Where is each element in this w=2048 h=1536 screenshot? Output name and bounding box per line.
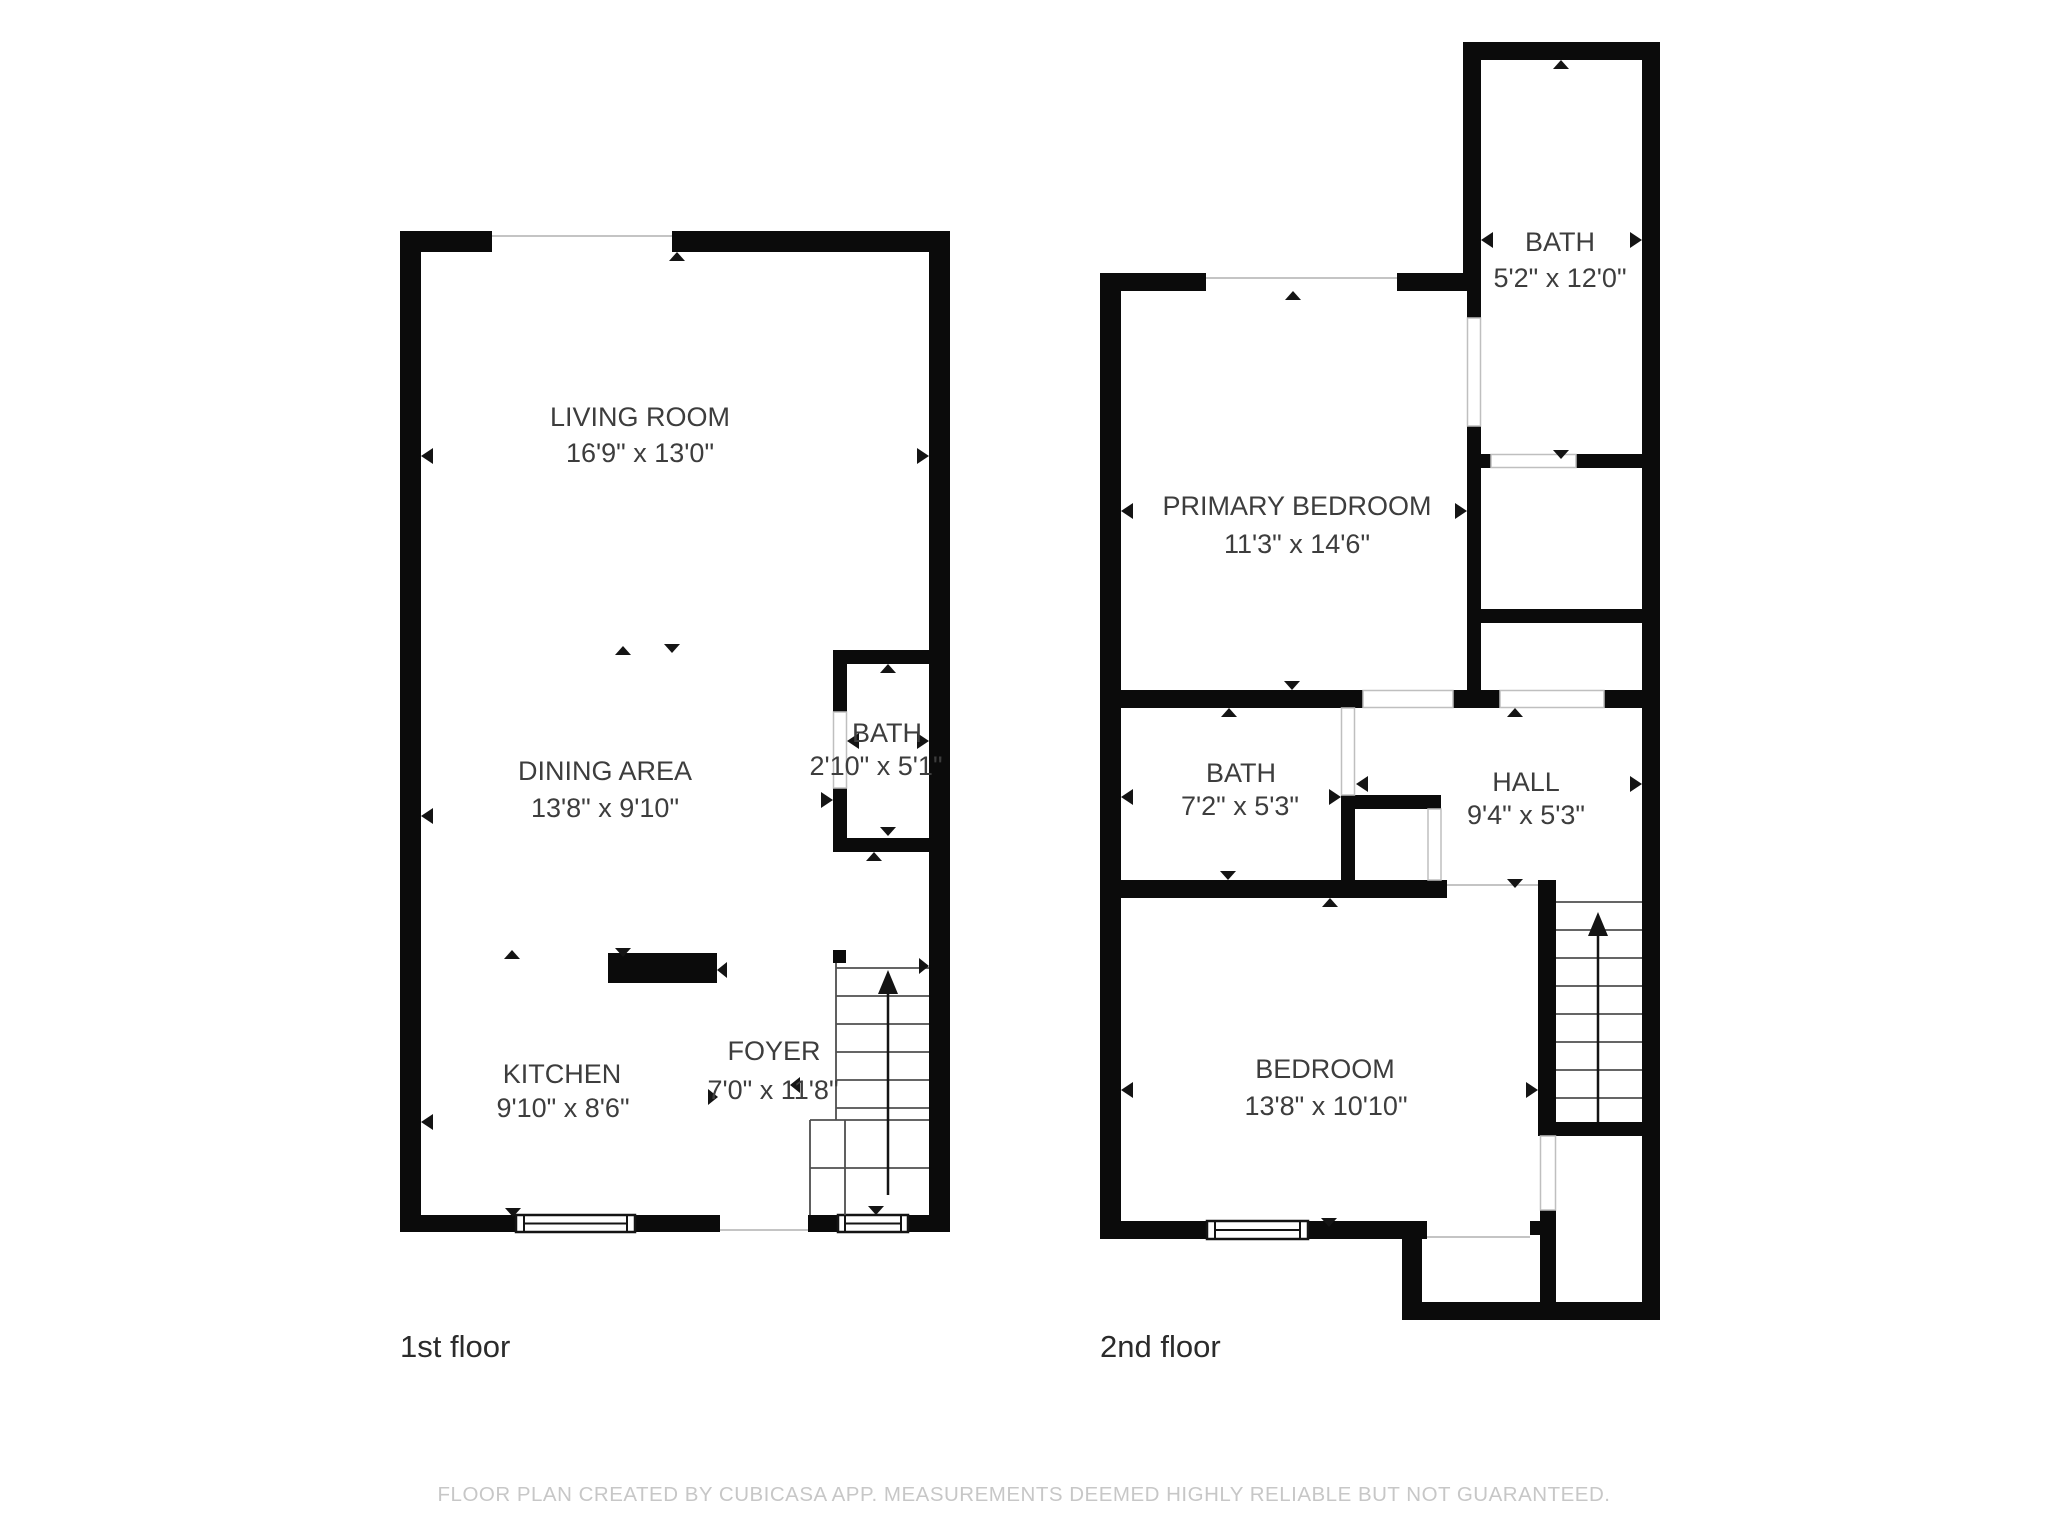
measure-arrow-down-icon bbox=[880, 827, 896, 836]
room-label-living-room: LIVING ROOM bbox=[550, 402, 730, 432]
measure-arrow-left-icon bbox=[1481, 232, 1493, 248]
room-label-kitchen: KITCHEN bbox=[503, 1059, 622, 1089]
measure-arrow-right-icon bbox=[1630, 776, 1642, 792]
room-dims-hall: 9'4" x 5'3" bbox=[1467, 800, 1585, 830]
room-label-primary-bedroom: PRIMARY BEDROOM bbox=[1162, 491, 1431, 521]
measure-arrow-left-icon bbox=[421, 808, 433, 824]
room-label-bath: BATH bbox=[852, 718, 922, 748]
upper-bath-door-opening bbox=[1468, 318, 1481, 426]
room-dims-bath-mid: 7'2" x 5'3" bbox=[1181, 791, 1299, 821]
measure-arrow-left-icon bbox=[1356, 776, 1368, 792]
first-floor-plan: LIVING ROOM 16'9" x 13'0" DINING AREA 13… bbox=[400, 231, 950, 1364]
room-dims-dining-area: 13'8" x 9'10" bbox=[531, 793, 679, 823]
door-marker-icon bbox=[1284, 681, 1300, 690]
measure-arrow-right-icon bbox=[919, 958, 929, 974]
second-floor-plan: BATH 5'2" x 12'0" PRIMARY BEDROOM 11'3" … bbox=[1100, 42, 1660, 1364]
kitchen-island bbox=[608, 953, 717, 983]
door-marker-icon bbox=[866, 852, 882, 861]
door-marker-icon bbox=[1507, 879, 1523, 888]
measure-arrow-down-icon bbox=[664, 644, 680, 653]
primary-bedroom-door-opening bbox=[1363, 691, 1453, 708]
measure-arrow-left-icon bbox=[1121, 789, 1133, 805]
foyer-window bbox=[838, 1215, 908, 1232]
room-label-bath-mid: BATH bbox=[1206, 758, 1276, 788]
measure-arrow-right-icon bbox=[1329, 789, 1341, 805]
footer-disclaimer: FLOOR PLAN CREATED BY CUBICASA APP. MEAS… bbox=[438, 1483, 1611, 1506]
door-marker-icon bbox=[669, 252, 685, 261]
measure-arrow-left-icon bbox=[421, 1114, 433, 1130]
stairs-up-arrow-icon bbox=[878, 970, 898, 1195]
measure-arrow-left-icon bbox=[1121, 503, 1133, 519]
second-floor-label: 2nd floor bbox=[1100, 1329, 1221, 1364]
room-dims-bath-upper: 5'2" x 12'0" bbox=[1493, 263, 1626, 293]
measure-arrow-right-icon bbox=[1630, 232, 1642, 248]
measure-arrow-left-icon bbox=[421, 448, 433, 464]
window-marker-icon bbox=[868, 1206, 884, 1215]
floor-plan-page: LIVING ROOM 16'9" x 13'0" DINING AREA 13… bbox=[0, 0, 2048, 1536]
door-marker-icon bbox=[1220, 871, 1236, 880]
door-marker-icon bbox=[1221, 708, 1237, 717]
room-label-hall: HALL bbox=[1492, 767, 1560, 797]
measure-arrow-left-icon bbox=[1121, 1082, 1133, 1098]
measure-arrow-up-icon bbox=[615, 646, 631, 655]
kitchen-window bbox=[516, 1215, 635, 1232]
measure-arrow-right-icon bbox=[1455, 503, 1467, 519]
room-label-bedroom: BEDROOM bbox=[1255, 1054, 1395, 1084]
room-dims-kitchen: 9'10" x 8'6" bbox=[496, 1093, 629, 1123]
bedroom-window bbox=[1207, 1221, 1308, 1239]
door-marker-icon bbox=[1507, 708, 1523, 717]
second-floor-room-labels: BATH 5'2" x 12'0" PRIMARY BEDROOM 11'3" … bbox=[1162, 227, 1626, 1121]
floor-plan-drawing: LIVING ROOM 16'9" x 13'0" DINING AREA 13… bbox=[0, 0, 2048, 1536]
room-dims-bath: 2'10" x 5'1" bbox=[809, 751, 942, 781]
measure-arrow-up-icon bbox=[504, 950, 520, 959]
room-label-bath-upper: BATH bbox=[1525, 227, 1595, 257]
mid-bath-door-opening bbox=[1342, 708, 1355, 795]
measure-arrow-up-icon bbox=[880, 664, 896, 673]
window-marker-icon bbox=[1285, 291, 1301, 300]
measure-arrow-right-icon bbox=[821, 792, 833, 808]
room-dims-foyer: 7'0" x 11'8" bbox=[707, 1075, 838, 1105]
mid-closet-door-opening bbox=[1428, 809, 1441, 880]
room-label-foyer: FOYER bbox=[727, 1036, 820, 1066]
first-floor-label: 1st floor bbox=[400, 1329, 510, 1364]
first-floor-room-labels: LIVING ROOM 16'9" x 13'0" DINING AREA 13… bbox=[496, 402, 942, 1123]
measure-arrow-right-icon bbox=[1526, 1082, 1538, 1098]
door-marker-icon bbox=[1322, 898, 1338, 907]
closet-door-opening bbox=[1500, 691, 1604, 708]
room-label-dining-area: DINING AREA bbox=[518, 756, 692, 786]
room-dims-primary-bedroom: 11'3" x 14'6" bbox=[1224, 529, 1370, 559]
room-dims-living-room: 16'9" x 13'0" bbox=[566, 438, 714, 468]
measure-arrow-right-icon bbox=[917, 448, 929, 464]
measure-arrow-left-icon bbox=[717, 962, 727, 978]
measure-arrow-up-icon bbox=[1553, 60, 1569, 69]
right-closet-door-opening bbox=[1541, 1136, 1556, 1210]
room-dims-bedroom: 13'8" x 10'10" bbox=[1244, 1091, 1407, 1121]
second-floor-stairs bbox=[1556, 902, 1642, 1122]
stairs-up-arrow-icon bbox=[1588, 912, 1608, 1122]
